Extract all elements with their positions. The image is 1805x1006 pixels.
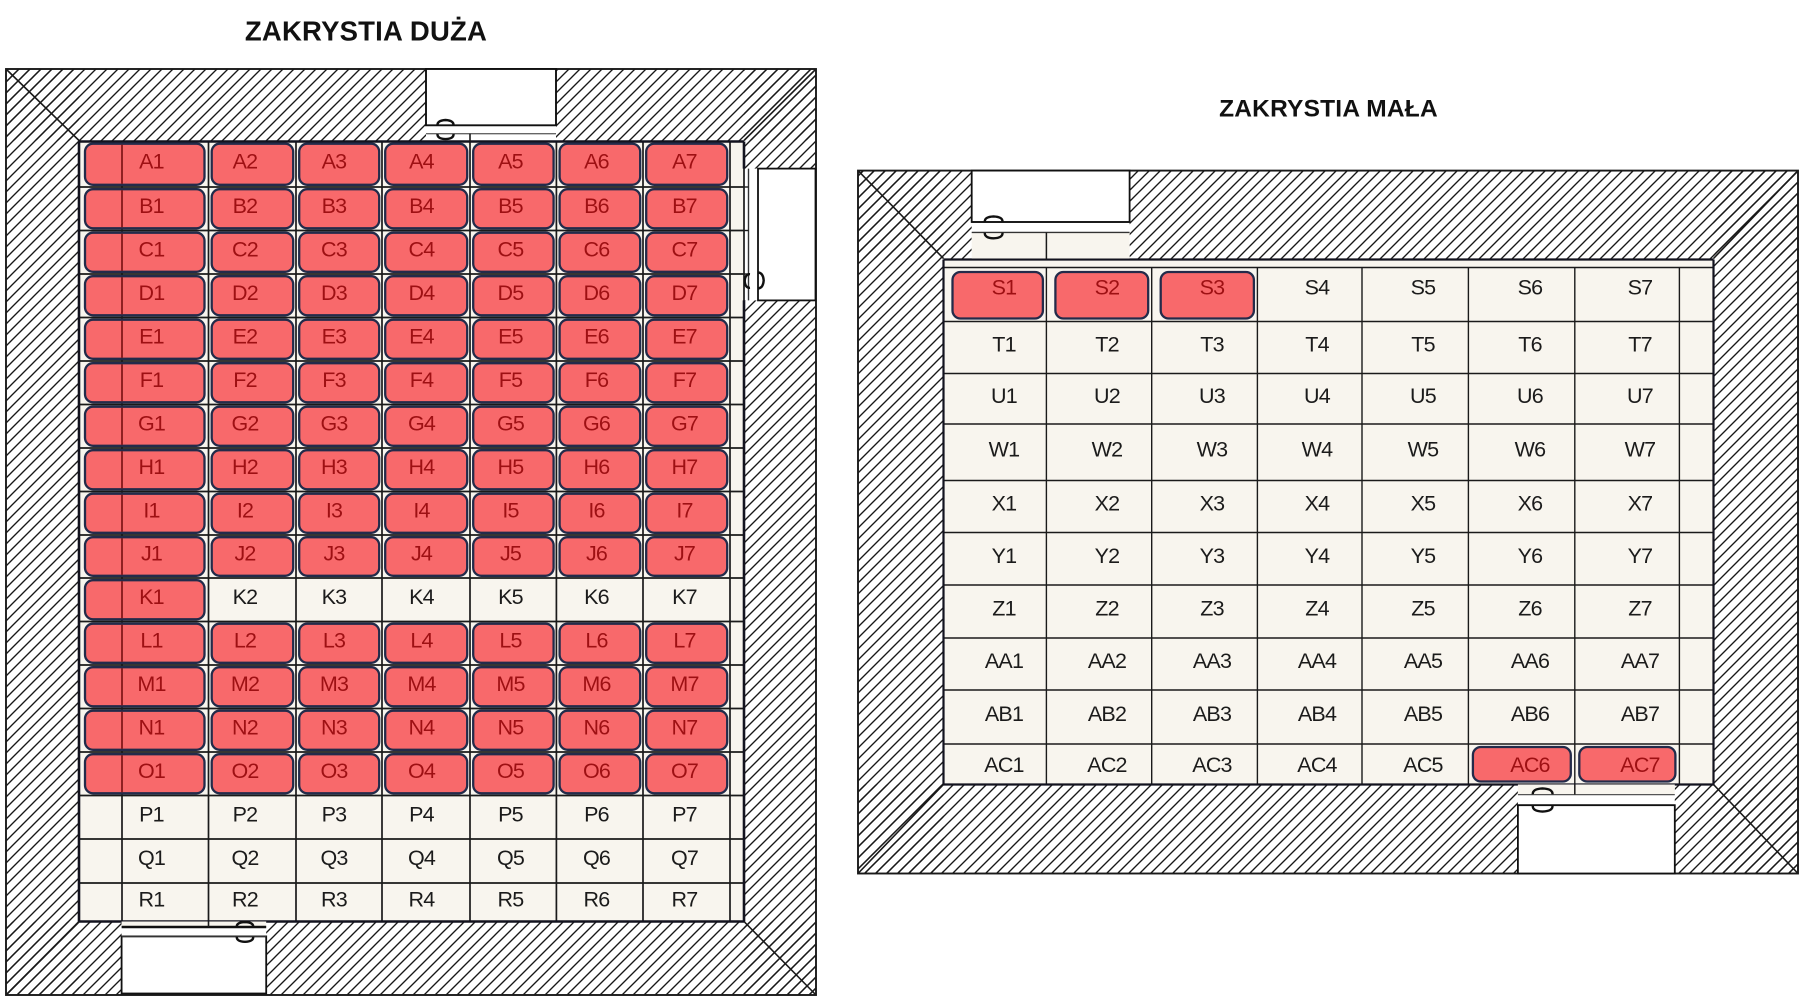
svg-text:D5: D5	[498, 281, 525, 305]
svg-text:U7: U7	[1627, 384, 1653, 408]
svg-text:ZAKRYSTIA MAŁA: ZAKRYSTIA MAŁA	[1219, 96, 1438, 123]
svg-text:F2: F2	[233, 368, 257, 392]
svg-text:AA6: AA6	[1511, 649, 1550, 673]
svg-text:X6: X6	[1518, 492, 1544, 516]
svg-text:AC7: AC7	[1620, 753, 1659, 777]
svg-text:D7: D7	[672, 281, 698, 305]
svg-text:N6: N6	[584, 715, 611, 739]
svg-text:F3: F3	[322, 368, 346, 392]
svg-text:F5: F5	[499, 368, 523, 392]
svg-text:W3: W3	[1197, 437, 1228, 461]
svg-text:K3: K3	[322, 585, 348, 609]
svg-text:AA4: AA4	[1298, 649, 1337, 673]
svg-text:P4: P4	[409, 802, 435, 826]
svg-text:T4: T4	[1305, 333, 1329, 357]
svg-text:G5: G5	[497, 411, 525, 435]
svg-text:P6: P6	[584, 802, 610, 826]
svg-text:U2: U2	[1094, 384, 1120, 408]
svg-text:C3: C3	[321, 237, 348, 261]
svg-text:W1: W1	[989, 437, 1020, 461]
svg-text:X3: X3	[1200, 492, 1226, 516]
svg-text:Z5: Z5	[1411, 597, 1435, 621]
svg-text:E1: E1	[139, 324, 164, 348]
svg-text:O4: O4	[408, 759, 436, 783]
svg-text:J6: J6	[586, 542, 608, 566]
svg-text:AC2: AC2	[1087, 753, 1126, 777]
svg-text:R7: R7	[672, 887, 698, 911]
svg-text:P1: P1	[139, 802, 164, 826]
svg-text:Q4: Q4	[408, 846, 436, 870]
svg-text:AA1: AA1	[985, 649, 1023, 673]
svg-text:R4: R4	[409, 887, 436, 911]
svg-text:AC6: AC6	[1510, 753, 1550, 777]
svg-text:Y2: Y2	[1095, 544, 1120, 568]
svg-text:O5: O5	[497, 759, 525, 783]
svg-text:M4: M4	[407, 672, 436, 696]
svg-text:R5: R5	[498, 887, 525, 911]
svg-text:J4: J4	[411, 542, 433, 566]
svg-text:X4: X4	[1305, 492, 1331, 516]
svg-text:I4: I4	[413, 498, 430, 522]
svg-text:H4: H4	[409, 455, 436, 479]
svg-text:A1: A1	[139, 149, 164, 173]
svg-text:AB1: AB1	[985, 702, 1023, 726]
svg-text:AA7: AA7	[1621, 649, 1659, 673]
svg-text:C1: C1	[139, 237, 165, 261]
svg-text:E3: E3	[322, 324, 348, 348]
svg-text:Y1: Y1	[992, 544, 1017, 568]
svg-text:N4: N4	[409, 715, 436, 739]
svg-text:B7: B7	[672, 194, 697, 218]
svg-text:P3: P3	[322, 802, 348, 826]
svg-text:M6: M6	[582, 672, 611, 696]
svg-text:S3: S3	[1200, 276, 1226, 300]
svg-text:Q1: Q1	[138, 846, 165, 870]
svg-text:C5: C5	[498, 237, 525, 261]
svg-text:U1: U1	[991, 384, 1017, 408]
svg-text:M1: M1	[137, 672, 165, 696]
svg-text:K5: K5	[498, 585, 524, 609]
svg-text:P7: P7	[672, 802, 697, 826]
svg-text:Y3: Y3	[1200, 544, 1226, 568]
svg-text:N7: N7	[672, 715, 698, 739]
svg-text:F6: F6	[585, 368, 609, 392]
svg-text:D3: D3	[321, 281, 348, 305]
svg-text:Q6: Q6	[583, 846, 611, 870]
svg-text:Z7: Z7	[1628, 597, 1652, 621]
svg-text:AC3: AC3	[1192, 753, 1232, 777]
svg-text:L2: L2	[234, 628, 256, 652]
svg-text:G1: G1	[138, 411, 165, 435]
svg-text:J7: J7	[674, 542, 695, 566]
svg-text:L6: L6	[585, 628, 608, 652]
svg-text:AB2: AB2	[1088, 702, 1126, 726]
svg-text:Y7: Y7	[1628, 544, 1653, 568]
svg-text:Z3: Z3	[1200, 597, 1224, 621]
svg-text:L1: L1	[140, 628, 162, 652]
svg-text:I6: I6	[588, 498, 605, 522]
svg-text:I2: I2	[237, 498, 253, 522]
svg-text:R3: R3	[321, 887, 348, 911]
svg-text:N3: N3	[321, 715, 348, 739]
svg-text:O1: O1	[138, 759, 165, 783]
svg-text:AC1: AC1	[984, 753, 1023, 777]
svg-text:W6: W6	[1515, 437, 1546, 461]
svg-text:R1: R1	[139, 887, 165, 911]
svg-text:K1: K1	[139, 585, 164, 609]
svg-text:Z4: Z4	[1305, 597, 1329, 621]
svg-text:T1: T1	[992, 333, 1016, 357]
svg-text:S7: S7	[1628, 276, 1653, 300]
svg-text:U6: U6	[1517, 384, 1544, 408]
svg-text:G6: G6	[583, 411, 611, 435]
svg-text:AB3: AB3	[1193, 702, 1232, 726]
svg-text:AB4: AB4	[1298, 702, 1337, 726]
svg-text:Q7: Q7	[671, 846, 698, 870]
svg-text:M5: M5	[496, 672, 525, 696]
svg-text:M2: M2	[231, 672, 259, 696]
svg-text:I3: I3	[326, 498, 343, 522]
svg-text:AB6: AB6	[1511, 702, 1550, 726]
svg-text:T2: T2	[1095, 333, 1119, 357]
svg-text:U5: U5	[1410, 384, 1437, 408]
svg-text:C2: C2	[232, 237, 258, 261]
svg-text:O7: O7	[671, 759, 698, 783]
svg-text:B5: B5	[498, 194, 524, 218]
svg-text:G2: G2	[231, 411, 258, 435]
svg-text:D2: D2	[232, 281, 258, 305]
svg-text:H5: H5	[498, 455, 525, 479]
svg-text:X5: X5	[1411, 492, 1437, 516]
svg-text:A6: A6	[584, 149, 610, 173]
svg-text:Z6: Z6	[1518, 597, 1542, 621]
svg-text:E2: E2	[233, 324, 258, 348]
svg-text:E6: E6	[584, 324, 610, 348]
svg-text:AC5: AC5	[1403, 753, 1443, 777]
svg-text:B1: B1	[139, 194, 164, 218]
svg-text:M7: M7	[670, 672, 698, 696]
svg-text:J5: J5	[500, 542, 522, 566]
svg-text:J3: J3	[323, 542, 345, 566]
svg-text:O6: O6	[583, 759, 611, 783]
svg-text:E4: E4	[409, 324, 435, 348]
svg-text:H3: H3	[321, 455, 348, 479]
svg-text:X7: X7	[1628, 492, 1653, 516]
svg-text:S6: S6	[1518, 276, 1544, 300]
svg-text:O2: O2	[231, 759, 258, 783]
svg-text:T5: T5	[1411, 333, 1435, 357]
svg-text:S4: S4	[1305, 276, 1331, 300]
svg-text:AA2: AA2	[1088, 649, 1126, 673]
svg-text:K6: K6	[584, 585, 610, 609]
svg-text:B4: B4	[409, 194, 435, 218]
svg-text:K2: K2	[233, 585, 258, 609]
svg-text:C4: C4	[409, 237, 436, 261]
svg-text:B3: B3	[322, 194, 348, 218]
svg-text:S2: S2	[1095, 276, 1120, 300]
svg-text:D4: D4	[409, 281, 436, 305]
svg-text:U4: U4	[1304, 384, 1331, 408]
svg-text:T6: T6	[1518, 333, 1542, 357]
svg-text:L5: L5	[499, 628, 522, 652]
svg-text:S1: S1	[992, 276, 1017, 300]
svg-text:Y4: Y4	[1305, 544, 1331, 568]
svg-text:N5: N5	[498, 715, 525, 739]
svg-text:I7: I7	[676, 498, 692, 522]
svg-text:P5: P5	[498, 802, 524, 826]
svg-text:O3: O3	[320, 759, 348, 783]
svg-text:G7: G7	[671, 411, 698, 435]
svg-text:H6: H6	[584, 455, 611, 479]
svg-text:K7: K7	[672, 585, 697, 609]
svg-text:L4: L4	[410, 628, 433, 652]
svg-text:F7: F7	[673, 368, 697, 392]
svg-text:ZAKRYSTIA DUŻA: ZAKRYSTIA DUŻA	[245, 16, 487, 47]
svg-text:AB7: AB7	[1621, 702, 1659, 726]
svg-text:I1: I1	[143, 498, 159, 522]
svg-text:D1: D1	[139, 281, 165, 305]
svg-text:S5: S5	[1411, 276, 1437, 300]
svg-text:L7: L7	[673, 628, 695, 652]
svg-text:AA3: AA3	[1193, 649, 1232, 673]
svg-text:E7: E7	[672, 324, 697, 348]
svg-text:T3: T3	[1200, 333, 1224, 357]
svg-text:W2: W2	[1092, 437, 1123, 461]
svg-text:Y6: Y6	[1518, 544, 1544, 568]
svg-text:I5: I5	[502, 498, 519, 522]
svg-text:C6: C6	[584, 237, 611, 261]
svg-text:Q3: Q3	[320, 846, 348, 870]
svg-text:J1: J1	[141, 542, 162, 566]
svg-text:Y5: Y5	[1411, 544, 1437, 568]
svg-text:AA5: AA5	[1404, 649, 1443, 673]
svg-text:A3: A3	[322, 149, 348, 173]
svg-text:Z1: Z1	[992, 597, 1016, 621]
svg-text:Q2: Q2	[231, 846, 258, 870]
svg-text:AB5: AB5	[1404, 702, 1443, 726]
svg-text:B2: B2	[233, 194, 258, 218]
svg-text:M3: M3	[320, 672, 349, 696]
svg-text:R6: R6	[584, 887, 611, 911]
svg-text:A2: A2	[233, 149, 258, 173]
svg-text:U3: U3	[1199, 384, 1226, 408]
svg-text:K4: K4	[409, 585, 435, 609]
svg-text:R2: R2	[232, 887, 258, 911]
svg-text:F1: F1	[140, 368, 164, 392]
svg-text:A7: A7	[672, 149, 697, 173]
svg-text:X2: X2	[1095, 492, 1120, 516]
svg-text:AC4: AC4	[1297, 753, 1337, 777]
svg-text:G3: G3	[320, 411, 348, 435]
svg-text:Q5: Q5	[497, 846, 525, 870]
svg-text:L3: L3	[323, 628, 346, 652]
svg-text:P2: P2	[233, 802, 258, 826]
svg-text:A4: A4	[409, 149, 435, 173]
svg-text:H1: H1	[139, 455, 165, 479]
svg-text:A5: A5	[498, 149, 524, 173]
svg-text:J2: J2	[234, 542, 255, 566]
svg-text:F4: F4	[410, 368, 434, 392]
svg-text:B6: B6	[584, 194, 610, 218]
svg-text:C7: C7	[672, 237, 698, 261]
svg-text:W5: W5	[1408, 437, 1439, 461]
svg-text:H7: H7	[672, 455, 698, 479]
svg-text:N2: N2	[232, 715, 258, 739]
svg-text:E5: E5	[498, 324, 524, 348]
svg-text:D6: D6	[584, 281, 611, 305]
svg-text:H2: H2	[232, 455, 258, 479]
svg-text:Z2: Z2	[1095, 597, 1119, 621]
svg-text:T7: T7	[1628, 333, 1652, 357]
svg-text:W7: W7	[1625, 437, 1656, 461]
svg-text:X1: X1	[992, 492, 1017, 516]
svg-text:N1: N1	[139, 715, 165, 739]
svg-text:G4: G4	[408, 411, 436, 435]
svg-text:W4: W4	[1302, 437, 1333, 461]
